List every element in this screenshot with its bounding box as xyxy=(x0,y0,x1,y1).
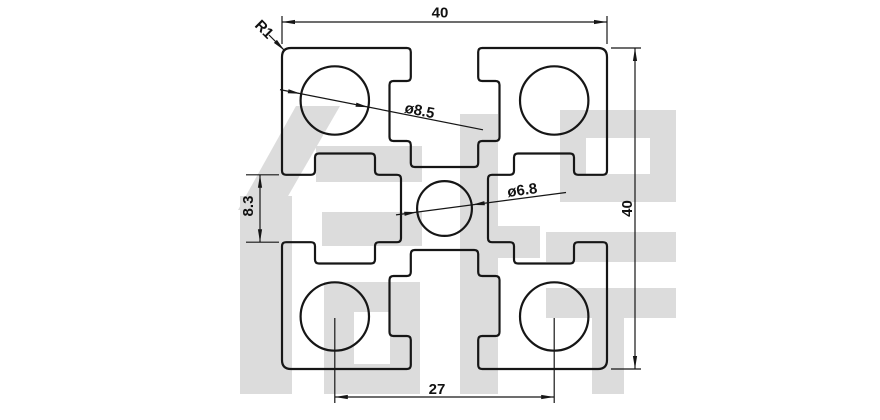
technical-drawing: 信牌 40 40 8.3 27 R1 ø8.5 ø6.8 xyxy=(0,0,880,420)
dim-label-top-width: 40 xyxy=(432,5,449,22)
dim-label-slot-opening: 8.3 xyxy=(240,196,257,217)
drawing-canvas: 信牌 40 40 8.3 27 R1 ø8.5 ø6.8 xyxy=(0,0,880,420)
dim-label-hole-spacing: 27 xyxy=(429,381,446,398)
dim-label-right-height: 40 xyxy=(619,200,636,217)
